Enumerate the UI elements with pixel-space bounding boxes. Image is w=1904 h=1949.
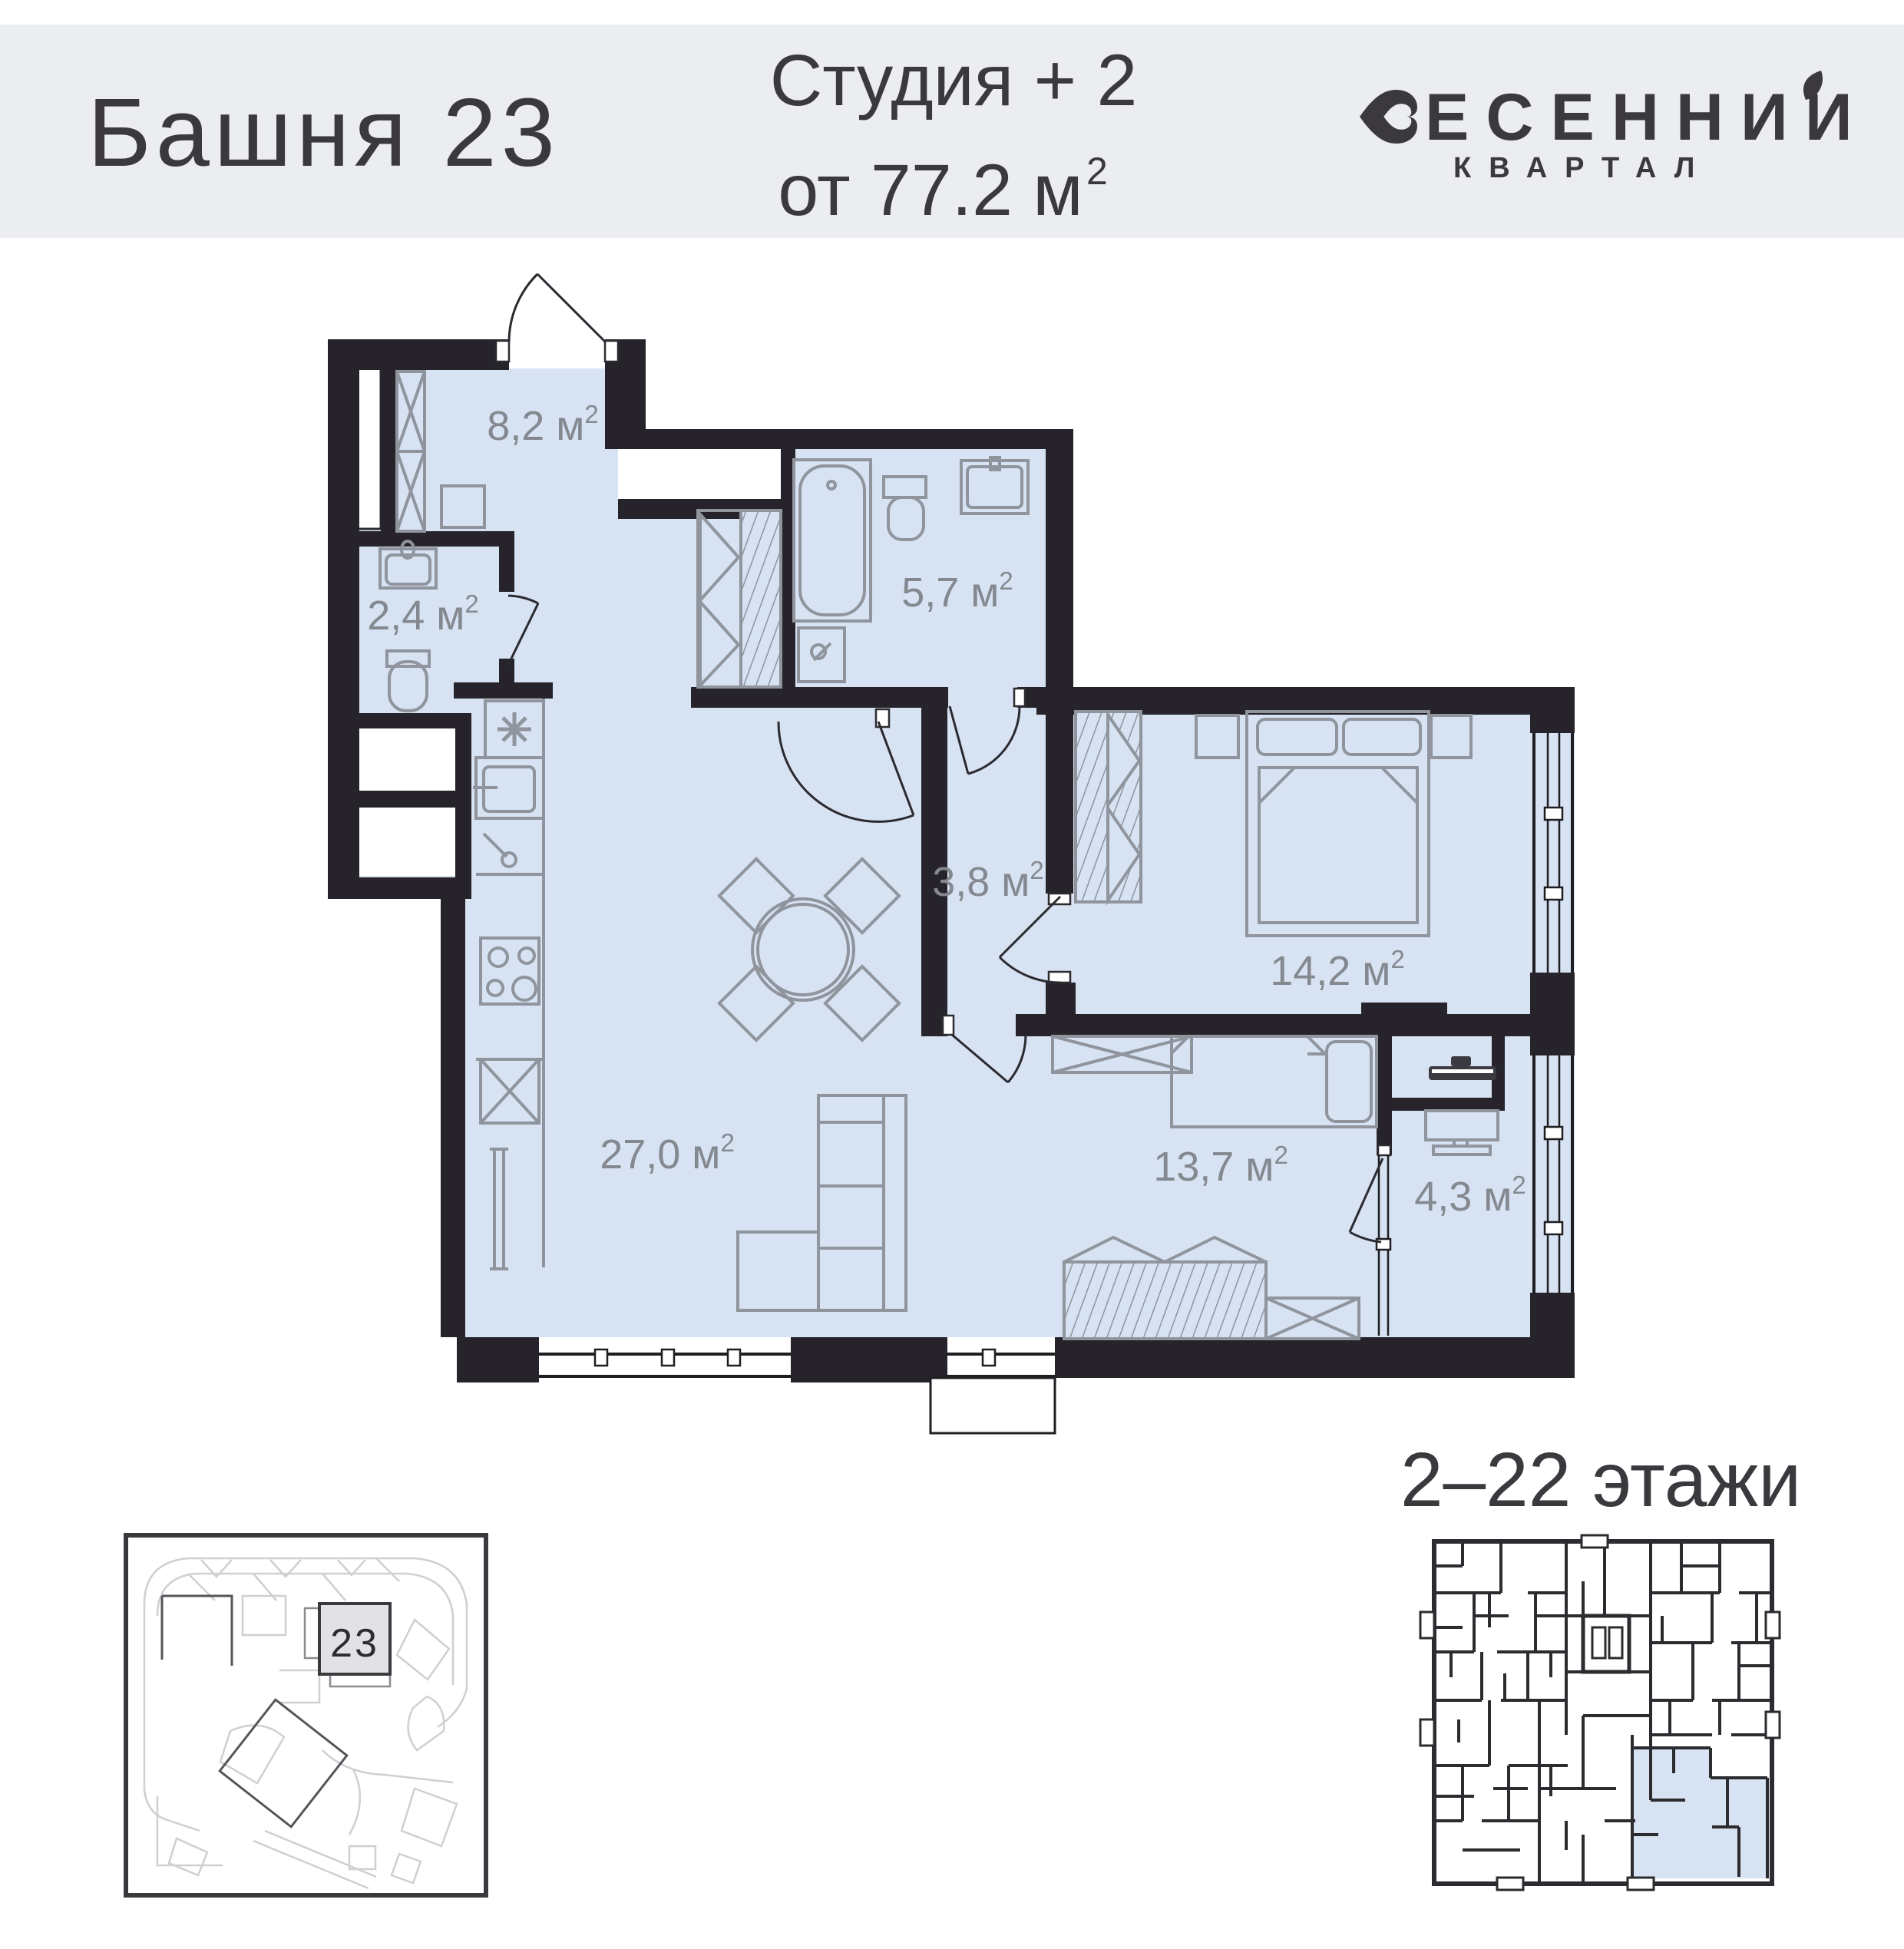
svg-text:ЕСЕННИИ: ЕСЕННИИ [1425, 81, 1869, 154]
svg-text:2: 2 [1086, 150, 1108, 193]
svg-text:Студия + 2: Студия + 2 [770, 40, 1138, 121]
svg-text:8,2 м2: 8,2 м2 [487, 400, 599, 449]
svg-text:3,8 м2: 3,8 м2 [932, 856, 1044, 905]
svg-text:27,0 м2: 27,0 м2 [600, 1128, 735, 1178]
svg-text:2–22 этажи: 2–22 этажи [1400, 1437, 1801, 1523]
svg-text:13,7 м2: 13,7 м2 [1153, 1141, 1288, 1190]
svg-text:2,4 м2: 2,4 м2 [367, 590, 479, 639]
svg-text:Башня 23: Башня 23 [88, 78, 560, 187]
svg-text:от 77.2 м: от 77.2 м [778, 150, 1083, 231]
svg-text:4,3 м2: 4,3 м2 [1414, 1171, 1526, 1220]
svg-text:14,2 м2: 14,2 м2 [1270, 945, 1405, 994]
svg-text:23: 23 [330, 1621, 379, 1666]
svg-text:5,7 м2: 5,7 м2 [901, 567, 1013, 616]
svg-text:КВАРТАЛ: КВАРТАЛ [1453, 152, 1712, 184]
